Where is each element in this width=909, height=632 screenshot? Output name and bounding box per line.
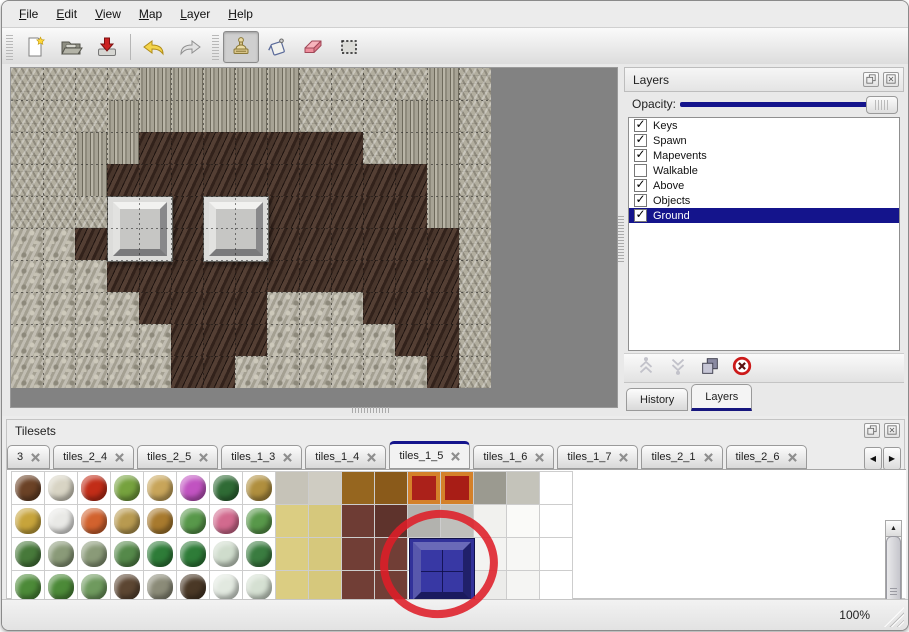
map-tile[interactable]	[267, 68, 299, 100]
tab-close-icon[interactable]	[535, 453, 544, 462]
float-panel-button[interactable]	[863, 72, 879, 87]
map-tile[interactable]	[267, 132, 299, 164]
map-tile[interactable]	[235, 100, 267, 132]
map-tile[interactable]	[75, 132, 107, 164]
map-tile[interactable]	[363, 196, 395, 228]
map-tile[interactable]	[171, 228, 203, 260]
lower-layer-button[interactable]	[666, 356, 690, 380]
map-tile[interactable]	[363, 100, 395, 132]
tileset-tile[interactable]	[375, 538, 408, 571]
map-tile[interactable]	[139, 260, 171, 292]
map-tile[interactable]	[43, 356, 75, 388]
map-tile[interactable]	[171, 260, 203, 292]
tileset-tile[interactable]	[276, 538, 309, 571]
tileset-tile[interactable]	[408, 472, 441, 505]
duplicate-icon	[699, 355, 721, 382]
save-button[interactable]	[89, 31, 125, 63]
layer-row-above[interactable]: ✓Above	[629, 178, 899, 193]
close-panel-button[interactable]	[883, 72, 899, 87]
menu-item-view[interactable]: View	[86, 4, 130, 24]
undo-icon	[141, 35, 167, 59]
map-tile[interactable]	[363, 68, 395, 100]
tileset-tile[interactable]	[474, 505, 507, 538]
map-tile[interactable]	[11, 228, 43, 260]
open-file-button[interactable]	[53, 31, 89, 63]
stone-pedestal[interactable]	[107, 196, 173, 262]
map-tile[interactable]	[203, 100, 235, 132]
map-tile[interactable]	[203, 132, 235, 164]
map-tile[interactable]	[43, 324, 75, 356]
delete-layer-button[interactable]	[730, 356, 754, 380]
map-tile[interactable]	[235, 356, 267, 388]
map-tile[interactable]	[43, 68, 75, 100]
tab-close-icon[interactable]	[788, 453, 797, 462]
map-tile[interactable]	[43, 292, 75, 324]
tileset-tab-3[interactable]: 3	[7, 445, 50, 469]
map-tile[interactable]	[43, 260, 75, 292]
map-tile[interactable]	[107, 100, 139, 132]
map-panel	[10, 67, 618, 408]
layer-name-label: Above	[653, 180, 684, 192]
tab-close-icon[interactable]	[31, 453, 40, 462]
map-tile[interactable]	[107, 68, 139, 100]
layer-visibility-checkbox[interactable]	[634, 164, 647, 177]
map-tile[interactable]	[459, 196, 491, 228]
delete-icon	[731, 355, 753, 382]
tileset-tile[interactable]	[342, 505, 375, 538]
select-tool-button[interactable]	[331, 31, 367, 63]
tileset-tile[interactable]	[507, 505, 540, 538]
map-tile[interactable]	[395, 196, 427, 228]
map-tile[interactable]	[395, 164, 427, 196]
map-tile[interactable]	[171, 100, 203, 132]
map-tile[interactable]	[427, 68, 459, 100]
map-tile[interactable]	[139, 68, 171, 100]
map-tile[interactable]	[107, 356, 139, 388]
opacity-slider[interactable]	[680, 96, 898, 112]
map-tile[interactable]	[139, 100, 171, 132]
tileset-tile[interactable]	[210, 538, 243, 571]
tileset-tile[interactable]	[540, 505, 573, 538]
close-icon	[886, 71, 896, 89]
map-tile[interactable]	[203, 260, 235, 292]
map-tile[interactable]	[171, 356, 203, 388]
map-tile[interactable]	[235, 164, 267, 196]
map-tile[interactable]	[171, 132, 203, 164]
map-tile[interactable]	[267, 164, 299, 196]
tileset-tab-label: 3	[17, 451, 23, 463]
map-tile[interactable]	[331, 292, 363, 324]
map-tile[interactable]	[75, 68, 107, 100]
stone-pedestal[interactable]	[203, 196, 269, 262]
map-tile[interactable]	[459, 164, 491, 196]
map-tile[interactable]	[427, 292, 459, 324]
map-tile[interactable]	[235, 324, 267, 356]
tileset-tile[interactable]	[408, 505, 441, 538]
map-tile[interactable]	[363, 260, 395, 292]
map-tile[interactable]	[107, 324, 139, 356]
tileset-grid	[11, 471, 573, 604]
tileset-tile[interactable]	[342, 538, 375, 571]
map-tile[interactable]	[299, 356, 331, 388]
map-tile[interactable]	[267, 324, 299, 356]
map-tile[interactable]	[75, 164, 107, 196]
tileset-tile[interactable]	[507, 538, 540, 571]
map-tile[interactable]	[331, 100, 363, 132]
tab-scroll-left-button[interactable]: ◀	[864, 447, 882, 470]
layer-visibility-checkbox[interactable]: ✓	[634, 179, 647, 192]
tab-close-icon[interactable]	[619, 453, 628, 462]
layer-name-label: Mapevents	[653, 150, 707, 162]
map-tile[interactable]	[267, 196, 299, 228]
tileset-tab-tiles_1_6[interactable]: tiles_1_6	[473, 445, 554, 469]
map-tile[interactable]	[235, 292, 267, 324]
map-tile[interactable]	[427, 132, 459, 164]
map-tile[interactable]	[331, 68, 363, 100]
layers-dock: Layers Opacity: ✓Keys✓Spawn✓MapeventsWal…	[624, 67, 904, 411]
main-area: Layers Opacity: ✓Keys✓Spawn✓MapeventsWal…	[2, 64, 908, 416]
tileset-tab-tiles_1_3[interactable]: tiles_1_3	[221, 445, 302, 469]
opacity-row: Opacity:	[624, 94, 904, 114]
map-tile[interactable]	[11, 260, 43, 292]
tileset-tile[interactable]	[474, 538, 507, 571]
menu-item-edit[interactable]: Edit	[47, 4, 86, 24]
tileset-tile[interactable]	[78, 538, 111, 571]
tileset-tile[interactable]	[276, 472, 309, 505]
tileset-tile[interactable]	[144, 472, 177, 505]
map-tile[interactable]	[107, 164, 139, 196]
map-tile[interactable]	[299, 68, 331, 100]
map-tile[interactable]	[395, 228, 427, 260]
tileset-tile[interactable]	[12, 472, 45, 505]
map-tile[interactable]	[171, 292, 203, 324]
map-tile[interactable]	[75, 228, 107, 260]
layer-list: ✓Keys✓Spawn✓MapeventsWalkable✓Above✓Obje…	[628, 117, 900, 351]
layer-visibility-checkbox[interactable]: ✓	[634, 194, 647, 207]
layer-visibility-checkbox[interactable]: ✓	[634, 134, 647, 147]
tab-close-icon[interactable]	[115, 453, 124, 462]
tileset-tile[interactable]	[276, 505, 309, 538]
tileset-tile[interactable]	[144, 505, 177, 538]
tileset-tab-tiles_1_5[interactable]: tiles_1_5	[389, 441, 470, 469]
map-tile[interactable]	[363, 228, 395, 260]
opacity-label: Opacity:	[624, 97, 680, 111]
tileset-tile[interactable]	[507, 472, 540, 505]
toolbar-separator	[130, 34, 131, 60]
map-tile[interactable]	[139, 164, 171, 196]
map-tile[interactable]	[43, 100, 75, 132]
chevron-down-icon	[667, 355, 689, 382]
tileset-tile[interactable]	[441, 472, 474, 505]
map-tile[interactable]	[427, 196, 459, 228]
rect-select-icon	[337, 35, 361, 59]
map-tile[interactable]	[75, 324, 107, 356]
map-tile[interactable]	[299, 324, 331, 356]
map-tile[interactable]	[299, 100, 331, 132]
tileset-tab-tiles_1_4[interactable]: tiles_1_4	[305, 445, 386, 469]
map-tile[interactable]	[171, 164, 203, 196]
map-tile[interactable]	[299, 132, 331, 164]
map-tile[interactable]	[43, 132, 75, 164]
layer-row-spawn[interactable]: ✓Spawn	[629, 133, 899, 148]
tileset-tab-tiles_2_6[interactable]: tiles_2_6	[726, 445, 807, 469]
stamp-tool-button[interactable]	[223, 31, 259, 63]
tilesets-close-button[interactable]	[884, 423, 900, 438]
map-tile[interactable]	[299, 164, 331, 196]
map-tile[interactable]	[75, 100, 107, 132]
tileset-content: ▲ ▼	[7, 469, 906, 598]
map-tile[interactable]	[267, 292, 299, 324]
map-tile[interactable]	[75, 292, 107, 324]
map-tile[interactable]	[11, 356, 43, 388]
tileset-tile[interactable]	[210, 505, 243, 538]
map-tile[interactable]	[363, 356, 395, 388]
menu-item-help[interactable]: Help	[219, 4, 262, 24]
map-tile[interactable]	[395, 260, 427, 292]
map-tile[interactable]	[459, 260, 491, 292]
map-tile[interactable]	[427, 356, 459, 388]
tileset-tile[interactable]	[111, 505, 144, 538]
layer-row-walkable[interactable]: Walkable	[629, 163, 899, 178]
tab-close-icon[interactable]	[367, 453, 376, 462]
tileset-tile[interactable]	[441, 505, 474, 538]
map-tile[interactable]	[459, 100, 491, 132]
tileset-tile[interactable]	[342, 472, 375, 505]
map-tile[interactable]	[427, 164, 459, 196]
tileset-tile[interactable]	[12, 538, 45, 571]
tileset-tile[interactable]	[45, 505, 78, 538]
tileset-tile[interactable]	[243, 472, 276, 505]
resize-grip[interactable]	[884, 607, 904, 627]
map-tile[interactable]	[267, 356, 299, 388]
tab-close-icon[interactable]	[451, 452, 460, 461]
map-tile[interactable]	[299, 260, 331, 292]
layer-row-ground[interactable]: ✓Ground	[629, 208, 899, 223]
tileset-tile[interactable]	[243, 505, 276, 538]
map-tile[interactable]	[363, 292, 395, 324]
map-tile[interactable]	[11, 100, 43, 132]
map-tile[interactable]	[203, 356, 235, 388]
tileset-tab-label: tiles_1_3	[231, 451, 275, 463]
tileset-tile[interactable]	[45, 472, 78, 505]
map-tile[interactable]	[43, 196, 75, 228]
tileset-tile[interactable]	[177, 538, 210, 571]
map-tile[interactable]	[11, 196, 43, 228]
map-tile[interactable]	[331, 228, 363, 260]
horizontal-splitter-handle[interactable]	[352, 407, 390, 413]
layer-visibility-checkbox[interactable]: ✓	[634, 209, 647, 222]
tileset-tile[interactable]	[111, 472, 144, 505]
map-tile[interactable]	[331, 324, 363, 356]
map-tile[interactable]	[267, 100, 299, 132]
menu-item-file[interactable]: File	[10, 4, 47, 24]
map-tile[interactable]	[395, 132, 427, 164]
map-tile[interactable]	[427, 228, 459, 260]
map-tile[interactable]	[235, 260, 267, 292]
app-window: FileEditViewMapLayerHelp	[1, 0, 909, 631]
layer-row-mapevents[interactable]: ✓Mapevents	[629, 148, 899, 163]
tab-close-icon[interactable]	[704, 453, 713, 462]
duplicate-layer-button[interactable]	[698, 356, 722, 380]
map-tile[interactable]	[235, 68, 267, 100]
tileset-tab-tiles_2_1[interactable]: tiles_2_1	[641, 445, 722, 469]
layer-name-label: Walkable	[653, 165, 698, 177]
map-tile[interactable]	[395, 68, 427, 100]
map-tile[interactable]	[267, 228, 299, 260]
tab-close-icon[interactable]	[283, 453, 292, 462]
map-tile[interactable]	[459, 324, 491, 356]
tileset-tile[interactable]	[144, 538, 177, 571]
menu-item-layer[interactable]: Layer	[171, 4, 219, 24]
tileset-tab-tiles_1_7[interactable]: tiles_1_7	[557, 445, 638, 469]
tileset-tile[interactable]	[177, 505, 210, 538]
stamp-icon	[229, 35, 253, 59]
map-tile[interactable]	[331, 132, 363, 164]
map-tile[interactable]	[363, 164, 395, 196]
map-tile[interactable]	[11, 164, 43, 196]
arrow-left-icon: ◀	[870, 454, 876, 463]
map-tile[interactable]	[75, 196, 107, 228]
dock-tab-layers[interactable]: Layers	[691, 384, 752, 411]
eraser-icon	[301, 35, 325, 59]
tileset-tile[interactable]	[375, 472, 408, 505]
dock-tab-bar: HistoryLayers	[624, 385, 906, 411]
layer-row-keys[interactable]: ✓Keys	[629, 118, 899, 133]
layer-row-objects[interactable]: ✓Objects	[629, 193, 899, 208]
new-file-button[interactable]	[17, 31, 53, 63]
scroll-down-button[interactable]: ▼	[886, 630, 901, 631]
map-tile[interactable]	[139, 292, 171, 324]
tileset-tile[interactable]	[243, 538, 276, 571]
map-tile[interactable]	[427, 324, 459, 356]
tileset-tile[interactable]	[12, 505, 45, 538]
map-tile[interactable]	[11, 324, 43, 356]
map-tile[interactable]	[11, 292, 43, 324]
undo-button[interactable]	[136, 31, 172, 63]
map-tile[interactable]	[459, 68, 491, 100]
tilesets-float-button[interactable]	[864, 423, 880, 438]
fill-tool-button[interactable]	[259, 31, 295, 63]
map-tile[interactable]	[11, 68, 43, 100]
close-icon	[887, 422, 897, 440]
tileset-tab-label: tiles_2_4	[63, 451, 107, 463]
tileset-tile[interactable]	[540, 472, 573, 505]
tileset-tile[interactable]	[474, 472, 507, 505]
map-tile[interactable]	[459, 292, 491, 324]
status-bar: 100%	[2, 599, 908, 631]
map-tile[interactable]	[75, 356, 107, 388]
map-tile[interactable]	[203, 164, 235, 196]
float-icon	[867, 422, 877, 440]
map-tile[interactable]	[331, 196, 363, 228]
toolbar-drag-handle[interactable]	[6, 34, 13, 60]
layer-visibility-checkbox[interactable]: ✓	[634, 149, 647, 162]
save-import-icon	[95, 35, 119, 59]
map-tile[interactable]	[107, 292, 139, 324]
map-tile[interactable]	[43, 164, 75, 196]
map-tile[interactable]	[427, 260, 459, 292]
map-tile[interactable]	[363, 132, 395, 164]
tileset-tile[interactable]	[540, 538, 573, 571]
map-tile[interactable]	[363, 324, 395, 356]
tileset-tab-label: tiles_1_6	[483, 451, 527, 463]
map-tile[interactable]	[459, 132, 491, 164]
toolbar-drag-handle-2[interactable]	[212, 34, 219, 60]
tab-scroll-right-button[interactable]: ▶	[883, 447, 901, 470]
tileset-tile[interactable]	[375, 505, 408, 538]
tileset-tile[interactable]	[309, 538, 342, 571]
tileset-tile[interactable]	[309, 472, 342, 505]
layer-visibility-checkbox[interactable]: ✓	[634, 119, 647, 132]
tileset-tab-tiles_2_4[interactable]: tiles_2_4	[53, 445, 134, 469]
map-tile[interactable]	[75, 260, 107, 292]
tileset-tile[interactable]	[111, 538, 144, 571]
opacity-slider-handle[interactable]	[866, 96, 898, 114]
map-tile[interactable]	[459, 356, 491, 388]
map-tile[interactable]	[331, 260, 363, 292]
blue-block-tile[interactable]	[409, 538, 475, 604]
map-canvas[interactable]	[11, 68, 492, 389]
toolbar	[2, 27, 908, 66]
redo-icon	[177, 35, 203, 59]
layers-dock-titlebar: Layers	[624, 67, 904, 92]
map-tile[interactable]	[203, 292, 235, 324]
redo-button[interactable]	[172, 31, 208, 63]
map-tile[interactable]	[43, 228, 75, 260]
map-tile[interactable]	[395, 324, 427, 356]
map-tile[interactable]	[139, 132, 171, 164]
dock-tab-history[interactable]: History	[626, 388, 688, 411]
tileset-tile[interactable]	[309, 505, 342, 538]
map-tile[interactable]	[427, 100, 459, 132]
map-tile[interactable]	[107, 132, 139, 164]
map-tile[interactable]	[171, 68, 203, 100]
layer-name-label: Objects	[653, 195, 690, 207]
map-tile[interactable]	[235, 132, 267, 164]
scroll-up-button[interactable]: ▲	[886, 521, 901, 537]
map-tile[interactable]	[395, 100, 427, 132]
tileset-tile[interactable]	[177, 472, 210, 505]
raise-layer-button[interactable]	[634, 356, 658, 380]
map-tile[interactable]	[331, 164, 363, 196]
map-tile[interactable]	[171, 324, 203, 356]
map-tile[interactable]	[203, 324, 235, 356]
map-tile[interactable]	[299, 292, 331, 324]
eraser-tool-button[interactable]	[295, 31, 331, 63]
map-tile[interactable]	[299, 228, 331, 260]
map-tile[interactable]	[299, 196, 331, 228]
tilesets-titlebar: Tilesets	[7, 420, 904, 441]
map-tile[interactable]	[331, 356, 363, 388]
map-tile[interactable]	[267, 260, 299, 292]
tileset-tab-tiles_2_5[interactable]: tiles_2_5	[137, 445, 218, 469]
tab-close-icon[interactable]	[199, 453, 208, 462]
map-tile[interactable]	[11, 132, 43, 164]
map-tile[interactable]	[139, 324, 171, 356]
tileset-tile[interactable]	[210, 472, 243, 505]
map-tile[interactable]	[107, 260, 139, 292]
map-tile[interactable]	[171, 196, 203, 228]
map-tile[interactable]	[203, 68, 235, 100]
map-tile[interactable]	[459, 228, 491, 260]
tileset-tile[interactable]	[45, 538, 78, 571]
tileset-tile[interactable]	[78, 472, 111, 505]
map-tile[interactable]	[395, 356, 427, 388]
map-tile[interactable]	[395, 292, 427, 324]
map-tile[interactable]	[139, 356, 171, 388]
menu-item-map[interactable]: Map	[130, 4, 171, 24]
tileset-tile[interactable]	[78, 505, 111, 538]
